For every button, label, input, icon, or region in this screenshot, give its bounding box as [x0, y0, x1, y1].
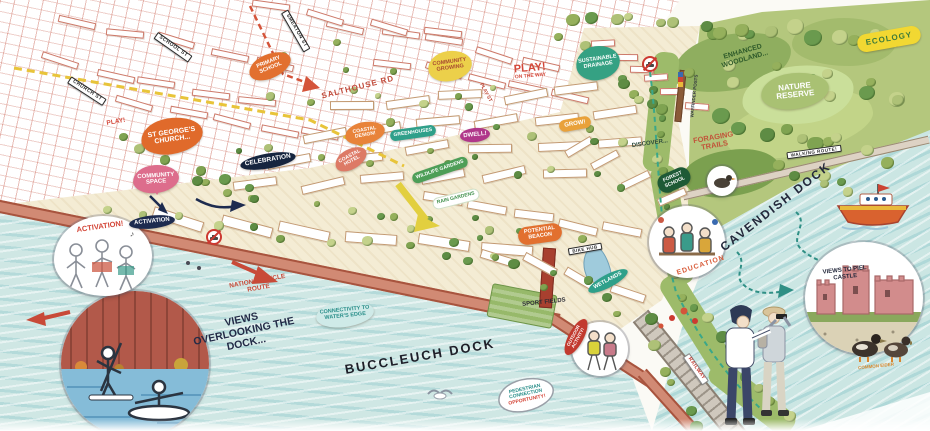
- pedestrian-priority-arrow: [398, 184, 426, 220]
- view-squiggle-arrow: [796, 212, 826, 263]
- play-on-the-way-label: PLAY! ON THE WAY: [513, 61, 546, 82]
- bird-vignette: [707, 166, 737, 196]
- car-free-zone-icon: [206, 229, 222, 245]
- car-glyph: [646, 64, 654, 67]
- fishing-boat-icon: [832, 180, 912, 235]
- cycle-route-arrowhead: [302, 76, 320, 92]
- kayaking-vignette: [61, 291, 209, 431]
- navy-arrow: [196, 199, 236, 207]
- car-free-zone-icon: [642, 56, 658, 72]
- illustrated-masterplan-map: SCHOOL ST CHURCH ST SMEATON ST SALTHOUSE…: [0, 0, 930, 431]
- duck-speck-icon: [197, 266, 201, 270]
- car-glyph: [210, 237, 218, 240]
- flowers-icon: [659, 308, 699, 329]
- view-squiggle-arrow: [737, 252, 785, 293]
- seagull-icon: [428, 391, 452, 400]
- duck-speck-icon: [186, 261, 190, 265]
- birdwatchers-illustration: [716, 300, 808, 431]
